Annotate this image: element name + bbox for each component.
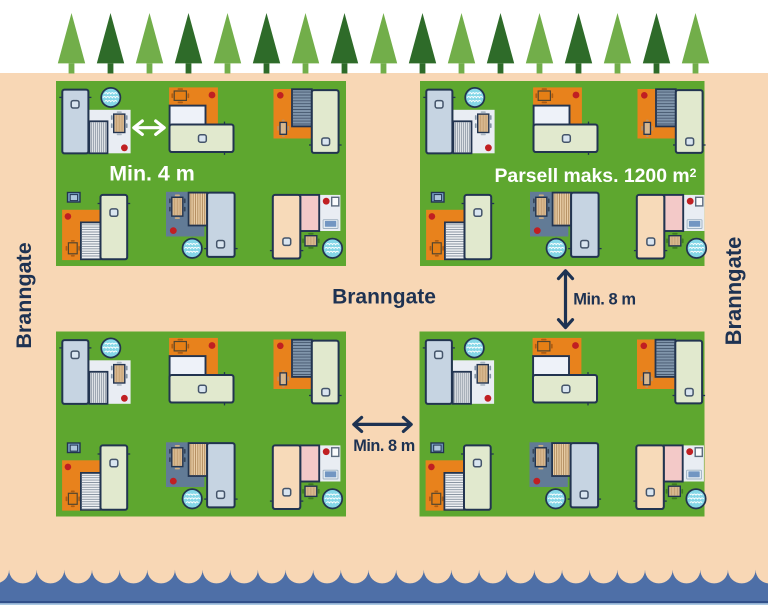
- svg-text:Parsell maks. 1200 m2: Parsell maks. 1200 m2: [495, 165, 697, 187]
- svg-text:Branngate: Branngate: [12, 242, 36, 348]
- svg-text:Branngate: Branngate: [721, 237, 746, 346]
- svg-text:Min. 8 m: Min. 8 m: [353, 437, 415, 455]
- svg-text:Min. 4 m: Min. 4 m: [109, 162, 195, 186]
- svg-text:Branngate: Branngate: [332, 285, 436, 308]
- svg-text:Min. 8 m: Min. 8 m: [573, 291, 635, 309]
